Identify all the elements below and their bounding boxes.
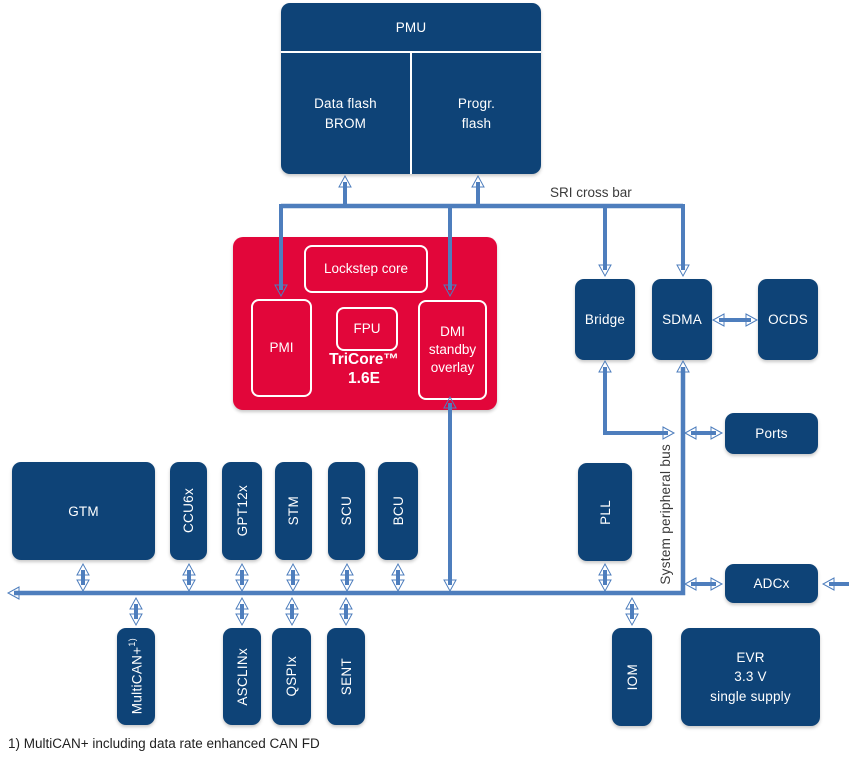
asclinx-block: ASCLINx bbox=[223, 628, 261, 725]
adcx-block: ADCx bbox=[725, 564, 818, 603]
pmi-block: PMI bbox=[251, 299, 312, 397]
pmu-title: PMU bbox=[281, 3, 541, 51]
multican-footnote-marker: 1) bbox=[127, 638, 137, 647]
dmi-standby-overlay-block: DMI standby overlay bbox=[418, 300, 487, 400]
sdma-block: SDMA bbox=[652, 279, 712, 360]
gtm-block: GTM bbox=[12, 462, 155, 560]
pmu-block: PMU Data flash BROM Progr. flash bbox=[281, 3, 541, 174]
ccu6x-block: CCU6x bbox=[170, 462, 207, 560]
pmu-cells: Data flash BROM Progr. flash bbox=[281, 51, 541, 174]
qspix-block: QSPIx bbox=[272, 628, 311, 725]
arrow-bridge-junction bbox=[605, 367, 668, 433]
iom-block: IOM bbox=[612, 628, 652, 726]
stm-block: STM bbox=[275, 462, 312, 560]
sri-cross-bar-label: SRI cross bar bbox=[550, 185, 632, 200]
tricore-cpu-block: Lockstep core PMI FPU DMI standby overla… bbox=[233, 237, 497, 410]
bcu-block: BCU bbox=[378, 462, 418, 560]
bridge-block: Bridge bbox=[575, 279, 635, 360]
ports-block: Ports bbox=[725, 413, 818, 454]
evr-block: EVR 3.3 V single supply bbox=[681, 628, 820, 726]
sent-block: SENT bbox=[327, 628, 365, 725]
gpt12x-block: GPT12x bbox=[222, 462, 262, 560]
tricore-title: TriCore™ 1.6E bbox=[304, 351, 424, 388]
scu-block: SCU bbox=[328, 462, 365, 560]
data-flash-brom-block: Data flash BROM bbox=[281, 53, 410, 174]
program-flash-block: Progr. flash bbox=[410, 53, 541, 174]
pll-block: PLL bbox=[578, 463, 632, 561]
soc-block-diagram: PMU Data flash BROM Progr. flash SRI cro… bbox=[0, 0, 850, 757]
ocds-block: OCDS bbox=[758, 279, 818, 360]
lockstep-core-block: Lockstep core bbox=[304, 245, 428, 293]
fpu-block: FPU bbox=[336, 307, 398, 351]
system-peripheral-bus-label: System peripheral bus bbox=[653, 438, 677, 590]
footnote: 1) MultiCAN+ including data rate enhance… bbox=[8, 736, 320, 751]
multican-block: MultiCAN+1) bbox=[117, 628, 155, 725]
